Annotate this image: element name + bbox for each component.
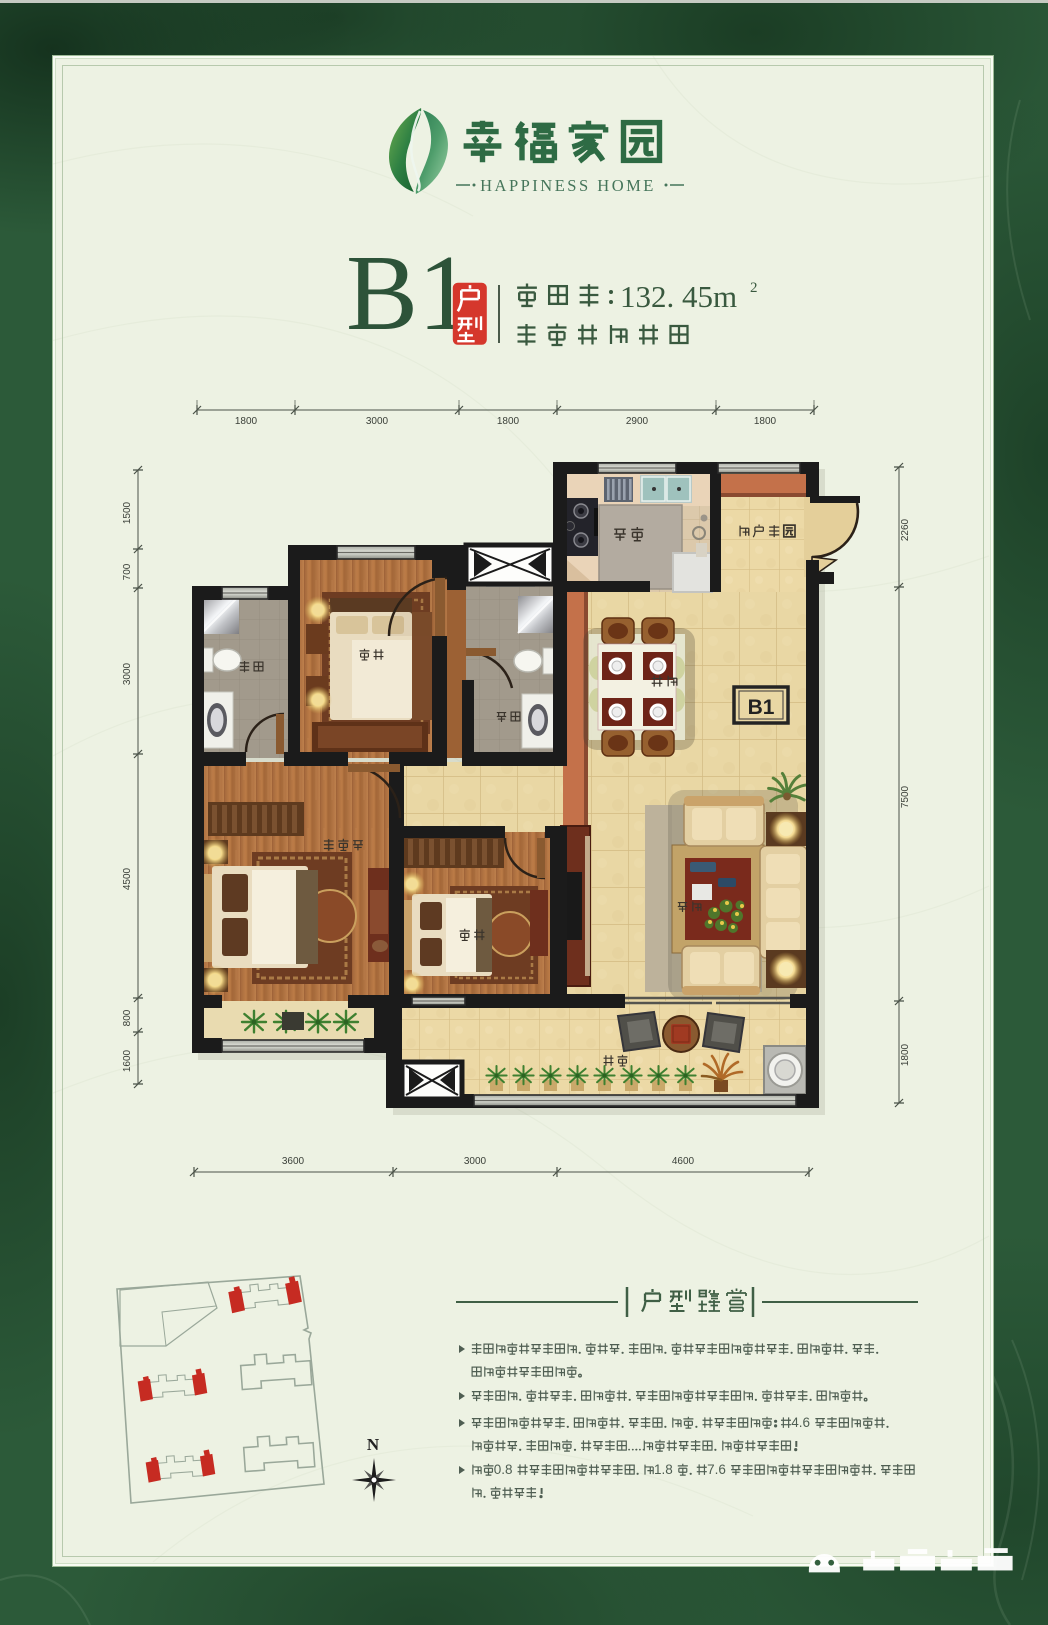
svg-text:7500: 7500 (900, 785, 911, 808)
svg-text:1800: 1800 (900, 1043, 911, 1066)
svg-text:1800: 1800 (497, 416, 520, 427)
svg-text:4600: 4600 (672, 1156, 695, 1167)
svg-text:1800: 1800 (235, 416, 258, 427)
svg-text:N: N (367, 1435, 380, 1454)
svg-text:800: 800 (122, 1009, 133, 1026)
svg-text:HAPPINESS HOME: HAPPINESS HOME (480, 176, 656, 195)
svg-text:1.8: 1.8 (654, 1462, 673, 1477)
svg-text:3000: 3000 (464, 1156, 487, 1167)
svg-text:1500: 1500 (122, 501, 133, 524)
svg-text:4.6: 4.6 (791, 1415, 810, 1430)
svg-text:3000: 3000 (122, 662, 133, 685)
svg-text:2900: 2900 (626, 416, 649, 427)
svg-text:700: 700 (122, 563, 133, 580)
svg-text:1600: 1600 (122, 1049, 133, 1072)
svg-text:0.8: 0.8 (494, 1462, 513, 1477)
svg-text:132. 45m: 132. 45m (620, 279, 737, 314)
svg-text:B1: B1 (748, 696, 775, 719)
svg-text:2260: 2260 (900, 518, 911, 541)
svg-text:2: 2 (750, 280, 758, 296)
svg-text:1800: 1800 (754, 416, 777, 427)
svg-text:7.6: 7.6 (707, 1462, 726, 1477)
svg-text:4500: 4500 (122, 867, 133, 890)
svg-text:3600: 3600 (282, 1156, 305, 1167)
svg-text:3000: 3000 (366, 416, 389, 427)
